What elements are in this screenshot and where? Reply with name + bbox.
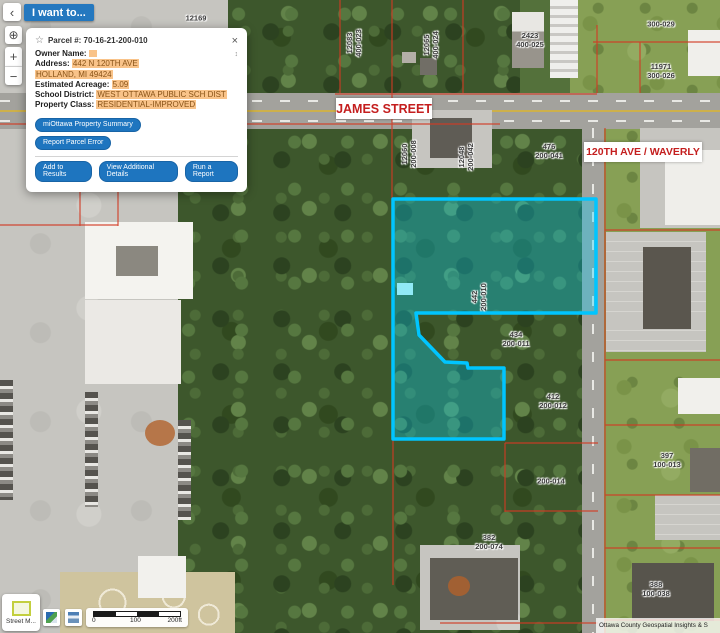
parcel-label: 12060200-008 [400, 140, 418, 168]
parcel-label: 12048200-042 [457, 143, 475, 171]
basemap-switcher-button[interactable]: Street M... [2, 594, 40, 631]
locate-button[interactable]: ⊕ [5, 26, 22, 44]
parcel-label: 300-029 [647, 20, 675, 29]
logo-button-1[interactable] [43, 609, 60, 626]
parcel-label: 476200-041 [535, 142, 563, 160]
parcel-label: 382200-074 [475, 533, 503, 551]
address-row: Address: 442 N 120TH AVE [26, 59, 247, 69]
street-map-icon [12, 601, 31, 616]
locate-icon: ⊕ [8, 28, 18, 42]
scale-bar: 0 100 200ft [86, 608, 188, 627]
terrain-woods-main [178, 128, 608, 633]
parcel-label: 12065400-024 [422, 31, 440, 59]
address-value: 442 N 120TH AVE [72, 59, 139, 68]
property-class-value: RESIDENTIAL-IMPROVED [96, 100, 196, 109]
building [430, 558, 518, 620]
building [688, 30, 720, 76]
property-summary-button[interactable]: miOttawa Property Summary [35, 118, 141, 132]
zoom-out-button[interactable]: − [5, 67, 22, 85]
parcel-label: 12169 [186, 14, 207, 23]
building [138, 556, 186, 598]
run-a-report-button[interactable]: Run a Report [185, 161, 238, 182]
basemap-label: Street M... [6, 618, 36, 625]
add-to-results-button[interactable]: Add to Results [35, 161, 92, 182]
building [678, 378, 720, 414]
parcel-label: 412200-012 [539, 392, 567, 410]
acreage-value: 5.09 [112, 80, 130, 89]
parcel-label: 388100-038 [642, 580, 670, 598]
parked-cars-row [178, 420, 191, 520]
parcel-label: 397100-013 [653, 451, 681, 469]
favorite-star-icon[interactable]: ☆ [35, 35, 44, 46]
parcel-label: 11971300-026 [647, 62, 675, 80]
parcel-label: 2423400-025 [516, 31, 544, 49]
parcel-info-popup: ☆ Parcel #: 70-16-21-200-010 × Owner Nam… [26, 28, 247, 192]
120th-ave-road [582, 128, 604, 633]
popup-title: Parcel #: 70-16-21-200-010 [48, 36, 232, 45]
city-value: HOLLAND, MI 49424 [35, 70, 113, 79]
terrain-woods-top [228, 0, 520, 93]
shed [397, 283, 413, 295]
close-icon[interactable]: × [232, 36, 238, 46]
autumn-tree [145, 420, 175, 446]
courtyard [116, 246, 158, 276]
report-parcel-error-button[interactable]: Report Parcel Error [35, 136, 111, 150]
owner-name-value [89, 50, 97, 57]
120th-ave-label: 120TH AVE / WAVERLY [584, 142, 702, 162]
parcel-label: 434200-011 [502, 330, 529, 348]
address-row-2: HOLLAND, MI 49424 [26, 70, 247, 80]
popup-action-buttons: Add to Results View Additional Details R… [26, 157, 247, 182]
lane-marking [592, 128, 594, 633]
parking-lot [655, 495, 720, 540]
parcel-label: 200-014 [537, 477, 565, 486]
parked-cars-row [85, 392, 98, 507]
partner-logo-icon [68, 612, 79, 623]
building [550, 0, 578, 78]
building [643, 247, 691, 329]
school-district-row: School District: WEST OTTAWA PUBLIC SCH … [26, 90, 247, 100]
logo-button-2[interactable] [65, 609, 82, 626]
acreage-row: Estimated Acreage: 5.09 [26, 80, 247, 90]
county-logo-icon [46, 612, 57, 623]
zoom-in-button[interactable]: + [5, 47, 22, 67]
popup-link-buttons-2: Report Parcel Error [26, 132, 247, 150]
i-want-to-button[interactable]: I want to... [24, 4, 94, 21]
owner-name-row: Owner Name: ↕ [26, 49, 247, 59]
popup-header: ☆ Parcel #: 70-16-21-200-010 × [26, 28, 247, 49]
building [85, 300, 181, 384]
collapse-panel-button[interactable]: ‹ [3, 3, 21, 21]
school-district-value: WEST OTTAWA PUBLIC SCH DIST [96, 90, 226, 99]
parcel-label-selected: 442200-010 [470, 283, 488, 311]
view-additional-details-button[interactable]: View Additional Details [99, 161, 178, 182]
james-street-label: JAMES STREET [336, 98, 432, 119]
parked-cars-row [0, 380, 13, 500]
property-class-row: Property Class: RESIDENTIAL-IMPROVED [26, 100, 247, 110]
autumn-tree [448, 576, 470, 596]
building [402, 52, 416, 63]
popup-link-buttons: miOttawa Property Summary [26, 111, 247, 132]
parcel-label: 12083400-023 [345, 29, 363, 57]
building [420, 58, 437, 75]
building [690, 448, 720, 492]
map-attribution: Ottawa County Geospatial Insights & S [596, 618, 720, 633]
map-viewer: 12169 12083400-023 12065400-024 2423400-… [0, 0, 720, 633]
